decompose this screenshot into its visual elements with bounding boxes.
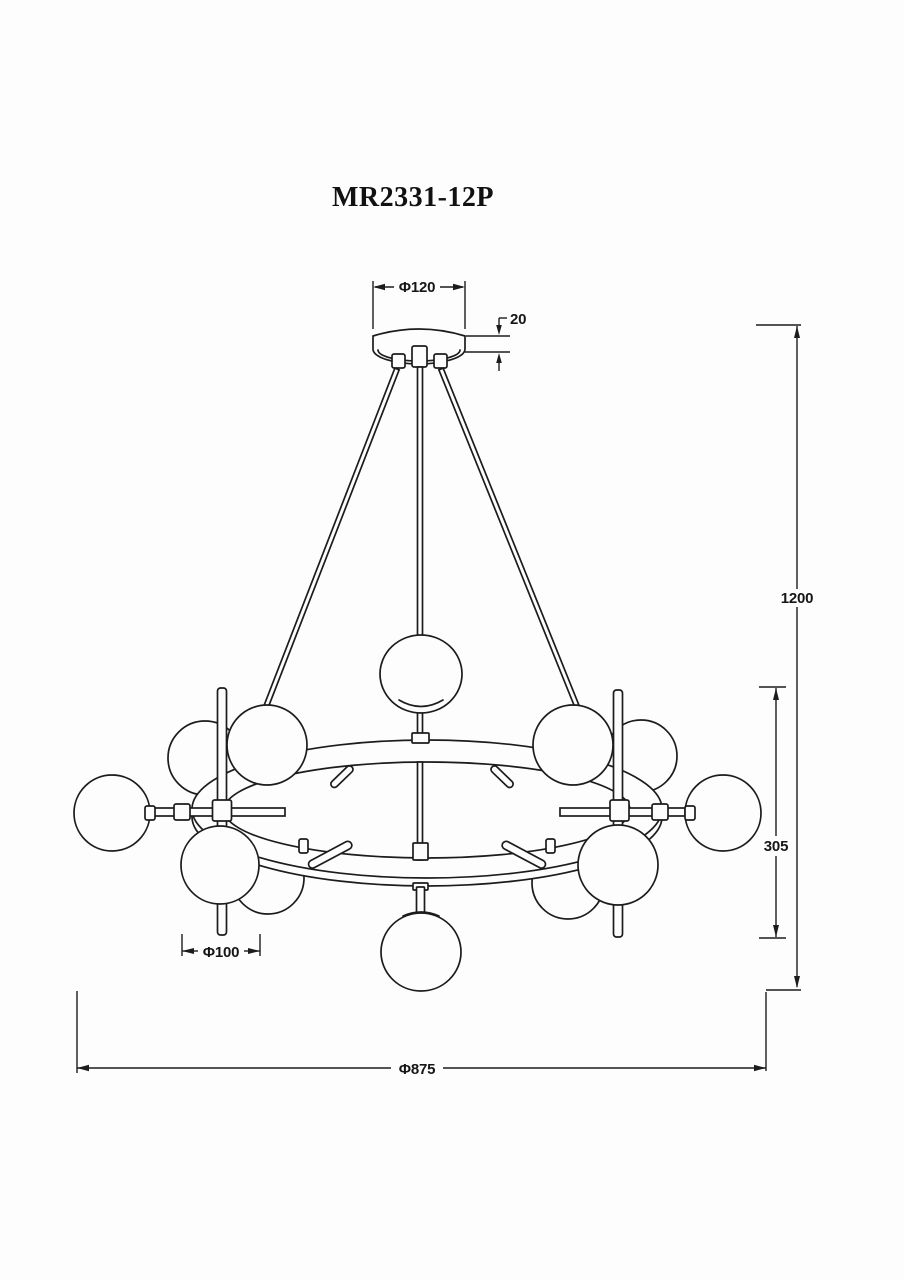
suspension-rod-left (263, 368, 399, 710)
ring-peg-small-right (546, 839, 555, 853)
ceiling-canopy (373, 329, 465, 368)
arm-left (150, 800, 285, 821)
glass-ball-top-center (380, 635, 462, 713)
model-title: MR2331-12P (332, 182, 494, 213)
drawing-sheet: MR2331-12P Φ120 20 1200 (0, 0, 904, 1280)
glass-ball-far-right (685, 775, 761, 851)
canopy-hook-left (392, 354, 405, 368)
canopy-diameter-label: Φ120 (399, 279, 436, 296)
ring-peg-back-right (490, 764, 515, 788)
body-height-label: 305 (764, 838, 788, 855)
far-left-ball-socket (145, 806, 155, 820)
ring-peg-back-left (329, 764, 354, 788)
glass-ball-front-upper-right (533, 705, 613, 785)
overall-diameter-label: Φ875 (399, 1061, 436, 1078)
ring-peg-small-left (299, 839, 308, 853)
overall-height-label: 1200 (781, 590, 814, 607)
lamp-diameter-label: Φ100 (203, 944, 240, 961)
dimension-canopy-height: 20 (465, 311, 526, 371)
suspension-rod-center (418, 367, 423, 637)
glass-ball-far-left (74, 775, 150, 851)
suspension-rod-right (439, 368, 580, 709)
canopy-hook-center (412, 346, 427, 367)
dimension-overall-diameter: Φ875 (77, 991, 766, 1078)
chandelier-technical-drawing: MR2331-12P Φ120 20 1200 (0, 0, 904, 1280)
canopy-hook-right (434, 354, 447, 368)
glass-ball-front-lower-left (181, 826, 259, 904)
dimension-overall-height: 1200 (756, 325, 813, 990)
glass-ball-front-upper-left (227, 705, 307, 785)
center-stem (412, 710, 429, 914)
glass-ball-front-lower-right (578, 825, 658, 905)
far-right-ball-socket (685, 806, 695, 820)
glass-ball-bottom-center (381, 913, 461, 991)
canopy-height-label: 20 (510, 311, 526, 328)
dimension-canopy-diameter: Φ120 (373, 279, 465, 329)
dimension-lamp-diameter: Φ100 (182, 934, 260, 961)
dimension-body-height: 305 (759, 687, 788, 938)
